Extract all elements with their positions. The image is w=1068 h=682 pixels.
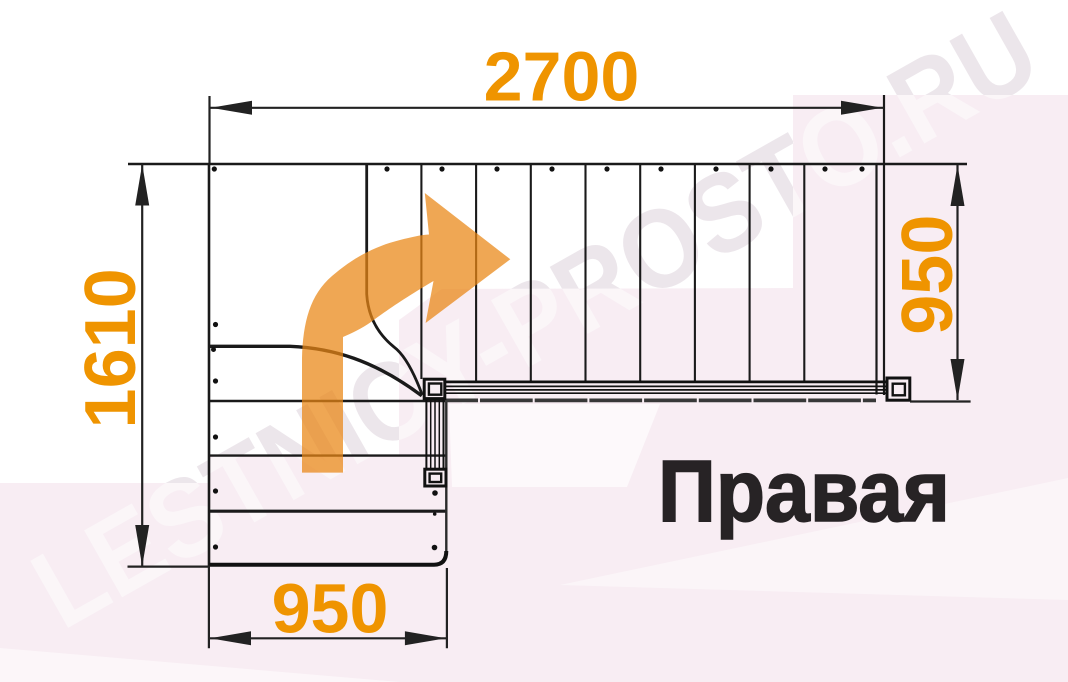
svg-text:950: 950 [272, 570, 389, 648]
svg-text:Правая: Правая [658, 443, 950, 540]
svg-text:1610: 1610 [71, 268, 151, 428]
svg-text:2700: 2700 [484, 38, 640, 116]
svg-text:950: 950 [888, 215, 968, 335]
